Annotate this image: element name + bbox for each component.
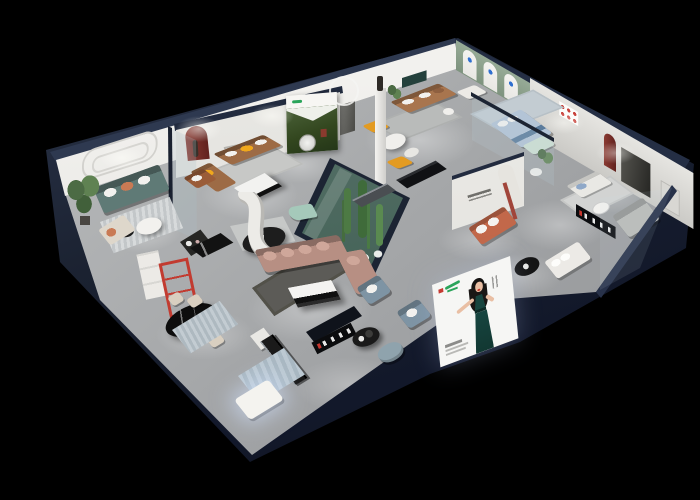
white-side-table xyxy=(403,146,420,159)
sign-front-center xyxy=(311,323,356,355)
white-side-table xyxy=(443,108,454,115)
forest-poster-brand-mark xyxy=(292,100,302,104)
orange-lounge-chair xyxy=(386,156,414,169)
billboard-vertical-text-marks xyxy=(492,274,501,289)
poster-arch-banner xyxy=(484,59,498,93)
billboard-logo-red-mark xyxy=(438,288,443,294)
cactus xyxy=(376,204,383,246)
corridor-plant-foliage xyxy=(386,82,402,102)
potted-plant-foliage xyxy=(64,174,104,220)
white-armchair xyxy=(456,85,488,100)
slate-blue-armchair xyxy=(396,298,432,329)
potted-plant-foliage xyxy=(536,146,554,168)
terracotta-sofa-bed xyxy=(468,206,517,245)
pedestal-column xyxy=(375,88,386,186)
ring-mirror xyxy=(329,76,359,106)
woman-dress-skirt xyxy=(472,308,494,354)
wall-spotlight-glow xyxy=(176,116,222,142)
white-bed xyxy=(544,241,592,279)
statue-figure xyxy=(377,76,383,91)
showroom-isometric-scene: Isometric cutaway 3D rendering of a furn… xyxy=(0,0,700,500)
cactus xyxy=(344,188,351,234)
wall-spotlight-glow xyxy=(596,142,636,164)
wall-media-panel-grey xyxy=(338,101,355,136)
forest-poster-red-chip xyxy=(321,129,327,137)
black-round-table-decor xyxy=(350,324,382,350)
wall-strip-dark-teal xyxy=(402,70,427,88)
wall-spotlight-glow xyxy=(544,112,584,134)
black-round-table xyxy=(512,253,543,279)
billboard-lightbox xyxy=(432,256,518,367)
poster-arch-banner xyxy=(463,47,477,81)
cactus xyxy=(358,180,367,238)
wall-spotlight-glow xyxy=(100,146,144,170)
wall-spotlight-glow xyxy=(250,104,294,128)
logo-wall-script-marks xyxy=(467,189,492,204)
recessed-wall-panel xyxy=(661,180,680,217)
white-side-table xyxy=(530,168,542,176)
slate-pouf xyxy=(374,338,407,366)
